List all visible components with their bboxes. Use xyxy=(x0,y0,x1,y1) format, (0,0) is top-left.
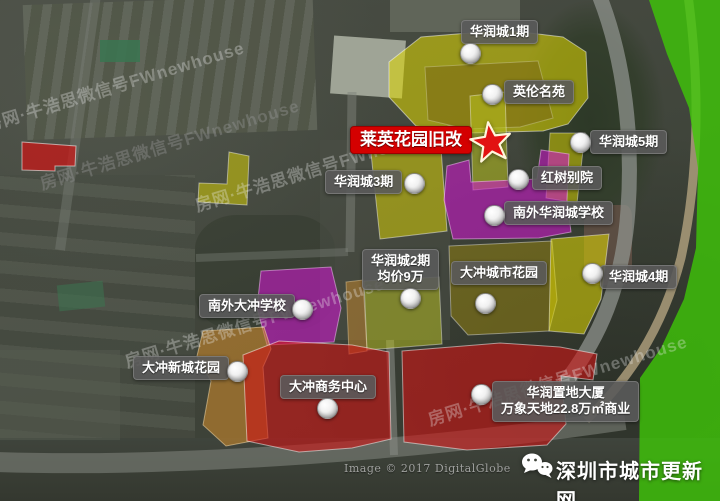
map-marker-nanwai-dachong-school xyxy=(292,299,313,320)
zone-small-yellow-plot xyxy=(198,152,249,205)
label-huarun-city-2: 华润城2期 均价9万 xyxy=(362,249,439,290)
map-marker-huarun-zhidi-tower xyxy=(471,384,492,405)
star-icon xyxy=(468,119,514,166)
label-huarun-city-5: 华润城5期 xyxy=(590,130,667,154)
map-marker-nanwai-huaruncheng-school xyxy=(484,205,505,226)
label-dachong-business-center: 大冲商务中心 xyxy=(280,375,376,399)
label-hongshu-bieyuan: 红树别院 xyxy=(532,166,602,190)
map-marker-huarun-city-2 xyxy=(400,288,421,309)
map-marker-yinglun-mingyuan xyxy=(482,84,503,105)
map-marker-dachong-xincheng-garden xyxy=(227,361,248,382)
label-line-1: 华润城2期 xyxy=(371,253,430,270)
label-line-1: 华润置地大厦 xyxy=(501,385,630,402)
label-line-2: 均价9万 xyxy=(371,269,430,286)
map-marker-dachong-business-center xyxy=(317,398,338,419)
map-marker-dachong-city-garden xyxy=(475,293,496,314)
label-line-2: 万象天地22.8万㎡商业 xyxy=(501,401,630,418)
site-watermark: 深圳市城市更新网 xyxy=(556,455,720,501)
label-laiying-garden-redevelopment: 莱英花园旧改 xyxy=(350,126,472,154)
label-huarun-city-1: 华润城1期 xyxy=(461,20,538,44)
label-yinglun-mingyuan: 英伦名苑 xyxy=(504,80,574,104)
label-huarun-city-4: 华润城4期 xyxy=(600,265,677,289)
map-marker-hongshu-bieyuan xyxy=(508,169,529,190)
label-nanwai-huaruncheng-school: 南外华润城学校 xyxy=(504,201,613,225)
map-stage: 房网·牛浩思微信号FWnewhouse 房网·牛浩思微信号FWnewhouse … xyxy=(0,0,720,501)
label-nanwai-dachong-school: 南外大冲学校 xyxy=(199,294,295,318)
imagery-copyright: Image © 2017 DigitalGlobe xyxy=(344,462,511,475)
map-marker-huarun-city-4 xyxy=(582,263,603,284)
road-mid xyxy=(196,252,348,258)
zone-overlay-layer xyxy=(0,0,720,501)
label-huarun-zhidi-tower: 华润置地大厦 万象天地22.8万㎡商业 xyxy=(492,381,639,422)
map-marker-huarun-city-5 xyxy=(570,132,591,153)
label-dachong-city-garden: 大冲城市花园 xyxy=(451,261,547,285)
wechat-icon xyxy=(520,452,554,480)
road-left xyxy=(60,0,96,250)
map-marker-huarun-city-1 xyxy=(460,43,481,64)
zone-orange-strip xyxy=(346,280,367,354)
label-huarun-city-3: 华润城3期 xyxy=(325,170,402,194)
map-marker-huarun-city-3 xyxy=(404,173,425,194)
zone-dachong-city-garden xyxy=(449,241,557,335)
label-dachong-xincheng-garden: 大冲新城花园 xyxy=(133,356,229,380)
